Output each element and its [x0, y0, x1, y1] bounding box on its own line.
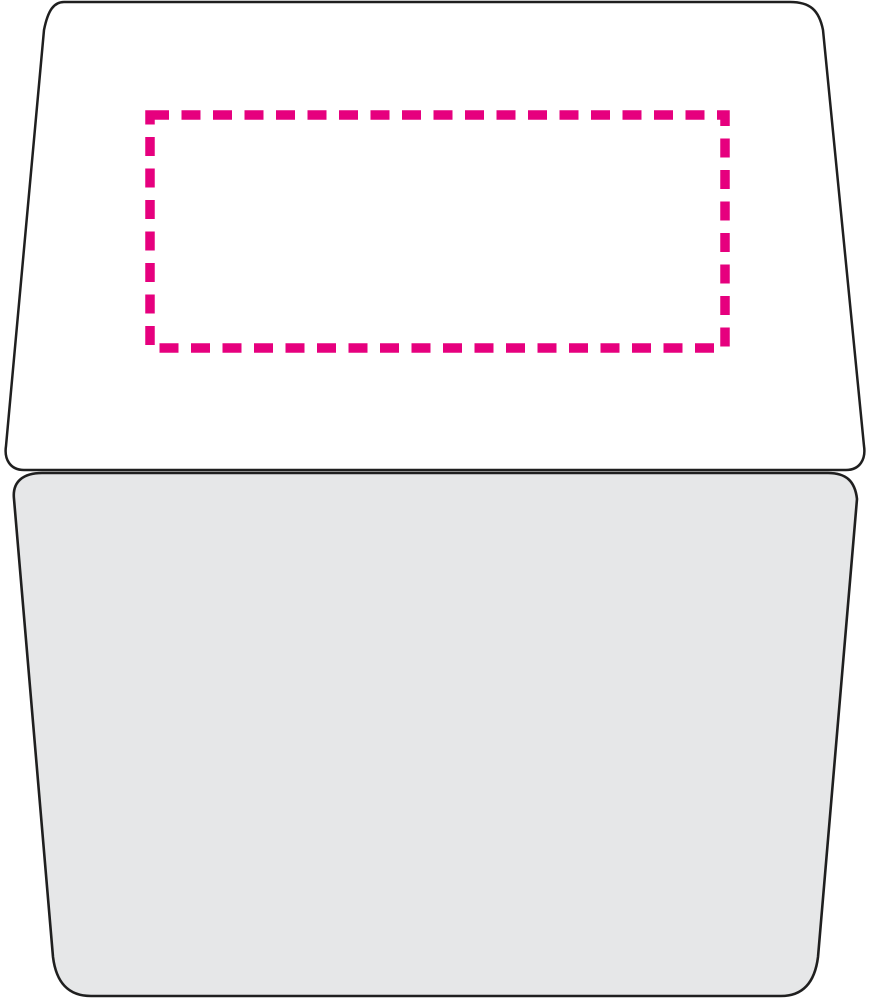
- product-lid-shape: [6, 2, 865, 470]
- product-template-canvas: [0, 0, 870, 1000]
- product-print-template: [0, 0, 870, 1000]
- product-body-shape: [14, 473, 857, 996]
